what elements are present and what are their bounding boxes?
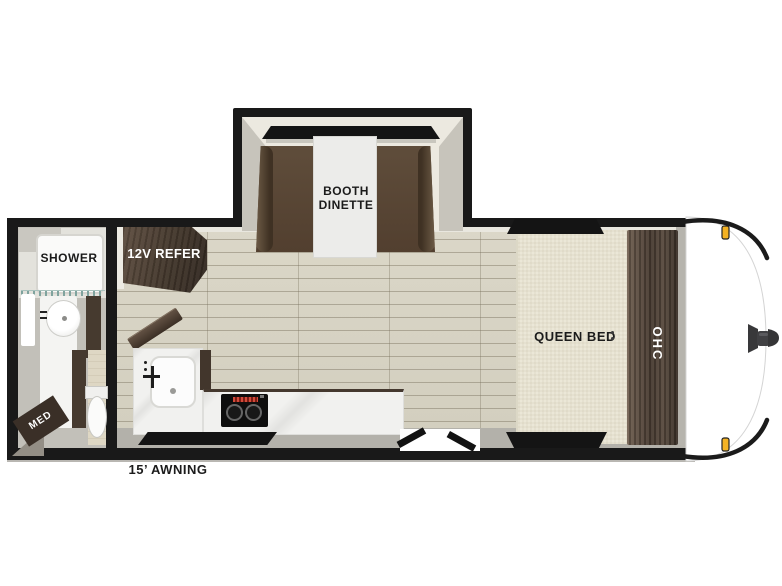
cooktop-knobs <box>233 397 258 402</box>
bathroom-cabinet-strip <box>72 350 86 428</box>
refrigerator-label: 12V REFER <box>123 246 205 261</box>
toilet <box>87 396 107 438</box>
marker-light-bottom <box>722 438 729 451</box>
kitchen-window <box>138 432 277 445</box>
booth-label-line2: DINETTE <box>288 198 404 212</box>
hitch-highlight <box>759 333 768 336</box>
kitchen-sink <box>150 356 196 408</box>
cooktop-burner <box>226 404 243 421</box>
hitch-coupler <box>768 329 779 347</box>
kitchen-faucet-knob <box>144 368 147 371</box>
front-cap-graphic <box>628 200 782 486</box>
bathroom-faucet-mark <box>40 311 47 313</box>
bed-latch-dot <box>611 331 614 334</box>
bathroom-window <box>21 294 35 346</box>
cooktop-burner <box>245 404 262 421</box>
hitch-flange <box>748 324 758 353</box>
kitchen-sink-drain <box>170 388 176 394</box>
kitchen-faucet-knob <box>144 361 147 364</box>
floorplan-canvas: BOOTH DINETTE QUEEN BED OHC SHOWER MED 1… <box>0 0 782 586</box>
bathroom-cabinet-strip <box>86 296 101 358</box>
bed-latch-dot <box>611 337 614 340</box>
marker-light-top <box>722 226 729 239</box>
shower-label: SHOWER <box>24 251 114 265</box>
queen-bed-label: QUEEN BED <box>505 329 645 344</box>
cooktop-logo-mark <box>260 395 264 398</box>
wall-shadow <box>7 460 695 462</box>
bedroom-window-top <box>507 219 604 234</box>
counter-side-panel <box>200 350 211 390</box>
kitchen-faucet <box>143 375 160 378</box>
med-label: MED <box>27 409 54 432</box>
booth-label-line1: BOOTH <box>288 184 404 198</box>
bedroom-window-bottom <box>506 432 607 448</box>
bathroom-faucet-mark <box>40 317 47 319</box>
sink-drain <box>62 316 67 321</box>
awning-label: 15’ AWNING <box>118 462 218 477</box>
booth-dinette-label: BOOTH DINETTE <box>288 184 404 212</box>
